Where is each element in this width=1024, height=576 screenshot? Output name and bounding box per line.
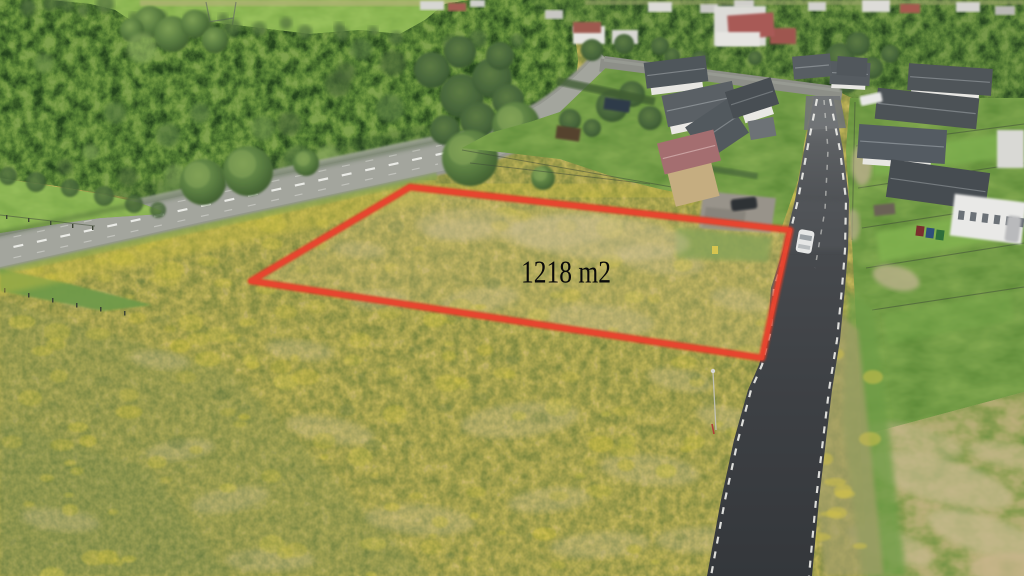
svg-text:1218 m2: 1218 m2 (521, 255, 611, 290)
